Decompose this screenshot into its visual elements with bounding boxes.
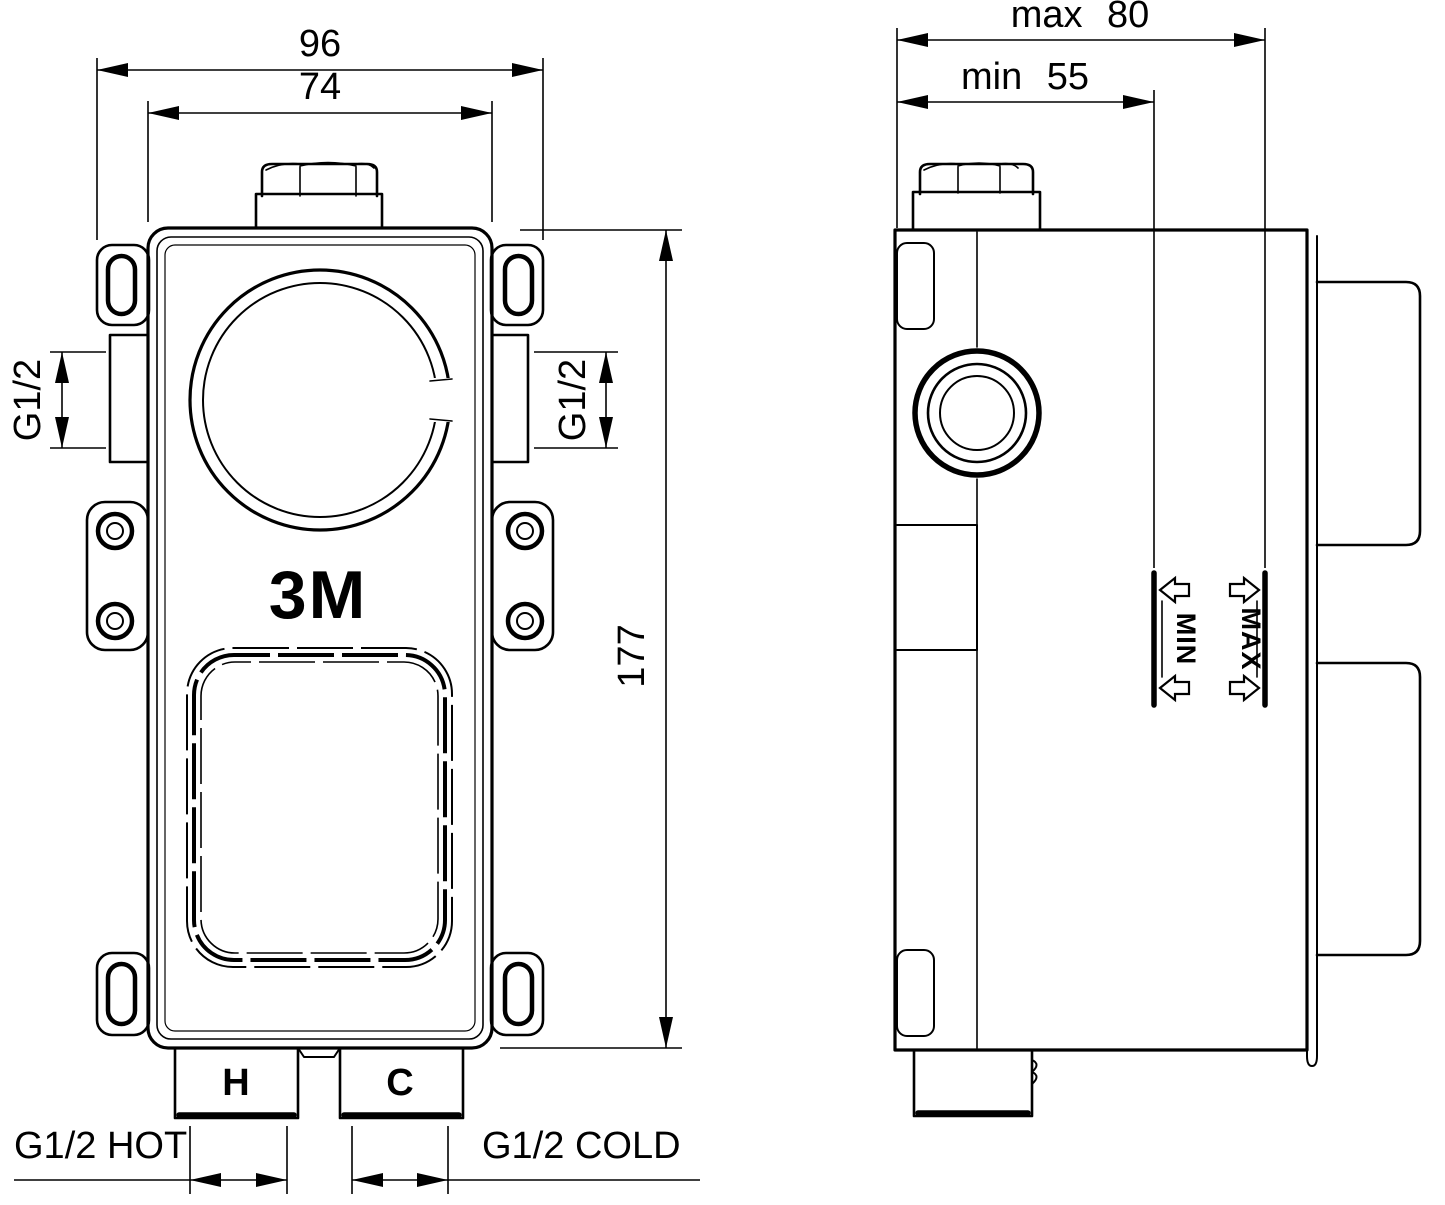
side-port-left-block bbox=[110, 335, 148, 462]
screw-hole bbox=[98, 514, 132, 548]
back-protrusion-lower bbox=[1317, 663, 1420, 955]
mounting-tab-bottom-right bbox=[491, 953, 543, 1035]
dimension-g12-right: G1/2 bbox=[534, 352, 618, 448]
dimension-depth-min: min 55 bbox=[897, 56, 1154, 568]
min-marker-text: MIN bbox=[1171, 613, 1201, 666]
side-tab-lower bbox=[897, 950, 934, 1036]
hot-label: G1/2 HOT bbox=[14, 1125, 187, 1167]
dim-text-min55: min 55 bbox=[961, 56, 1089, 98]
side-view: max 80 min 55 bbox=[895, 0, 1420, 1116]
arrowhead-right bbox=[461, 106, 492, 120]
cold-inlet-port: C bbox=[340, 1048, 463, 1118]
side-mid-bracket bbox=[897, 525, 977, 650]
back-protrusion-upper bbox=[1317, 282, 1420, 545]
screw-hole bbox=[98, 604, 132, 638]
dimension-cold-inlet: G1/2 COLD bbox=[352, 1125, 700, 1194]
min-arrow-up bbox=[1160, 578, 1189, 602]
dim-text-max80: max 80 bbox=[1011, 0, 1150, 36]
ring-gap bbox=[428, 378, 458, 422]
dimension-g12-left: G1/2 bbox=[7, 352, 106, 448]
mounting-tab-top-left bbox=[97, 245, 149, 325]
mounting-tab-bottom-left bbox=[97, 953, 149, 1035]
arrowhead-right bbox=[512, 63, 543, 77]
max-marker-text: MAX bbox=[1236, 608, 1266, 671]
front-view: 96 74 bbox=[7, 23, 700, 1194]
arrowhead-left bbox=[148, 106, 179, 120]
dimension-hot-inlet: G1/2 HOT bbox=[14, 1125, 287, 1194]
dimension-overall-width: 96 bbox=[97, 23, 543, 240]
slot-bottom-right bbox=[505, 964, 532, 1024]
hex-cap-front bbox=[256, 163, 382, 229]
dim-text-96: 96 bbox=[299, 23, 341, 65]
slot-top-right bbox=[505, 256, 532, 314]
hot-inlet-port: H bbox=[175, 1048, 298, 1118]
screw-hole bbox=[508, 604, 542, 638]
dimension-body-width: 74 bbox=[148, 66, 492, 222]
slot-top-left bbox=[108, 256, 135, 314]
bottom-port-side bbox=[914, 1050, 1037, 1116]
hex-cap-side bbox=[913, 163, 1040, 230]
side-port-circle bbox=[915, 351, 1039, 475]
technical-drawing-page: 96 74 bbox=[0, 0, 1445, 1205]
min-arrow-down bbox=[1160, 676, 1189, 700]
side-port-right-block bbox=[492, 335, 528, 462]
mounting-bracket-mid-right bbox=[492, 502, 553, 650]
screw-hole bbox=[508, 514, 542, 548]
slot-bottom-left bbox=[108, 964, 135, 1024]
valve-body-side bbox=[895, 230, 1420, 1066]
mounting-bracket-mid-left bbox=[87, 502, 148, 650]
cold-label: G1/2 COLD bbox=[482, 1125, 681, 1167]
dim-text-g12-right: G1/2 bbox=[552, 359, 594, 441]
cold-port-mark: C bbox=[386, 1062, 413, 1104]
embossed-panel bbox=[187, 648, 452, 967]
max-wall-marker: MAX bbox=[1230, 573, 1266, 705]
min-wall-marker: MIN bbox=[1154, 573, 1201, 705]
valve-rough-in-drawing: 96 74 bbox=[0, 0, 1445, 1205]
hot-port-mark: H bbox=[222, 1062, 249, 1104]
max-arrow-up bbox=[1230, 578, 1259, 602]
dim-text-177: 177 bbox=[611, 624, 653, 687]
max-arrow-down bbox=[1230, 676, 1259, 700]
arrowhead-left bbox=[97, 63, 128, 77]
dim-text-g12-left: G1/2 bbox=[7, 359, 49, 441]
logo-3m: 3M bbox=[269, 557, 367, 633]
mounting-tab-top-right bbox=[491, 245, 543, 325]
dim-text-74: 74 bbox=[299, 66, 341, 108]
side-tab-upper bbox=[897, 243, 934, 329]
inspection-circle bbox=[190, 270, 458, 530]
